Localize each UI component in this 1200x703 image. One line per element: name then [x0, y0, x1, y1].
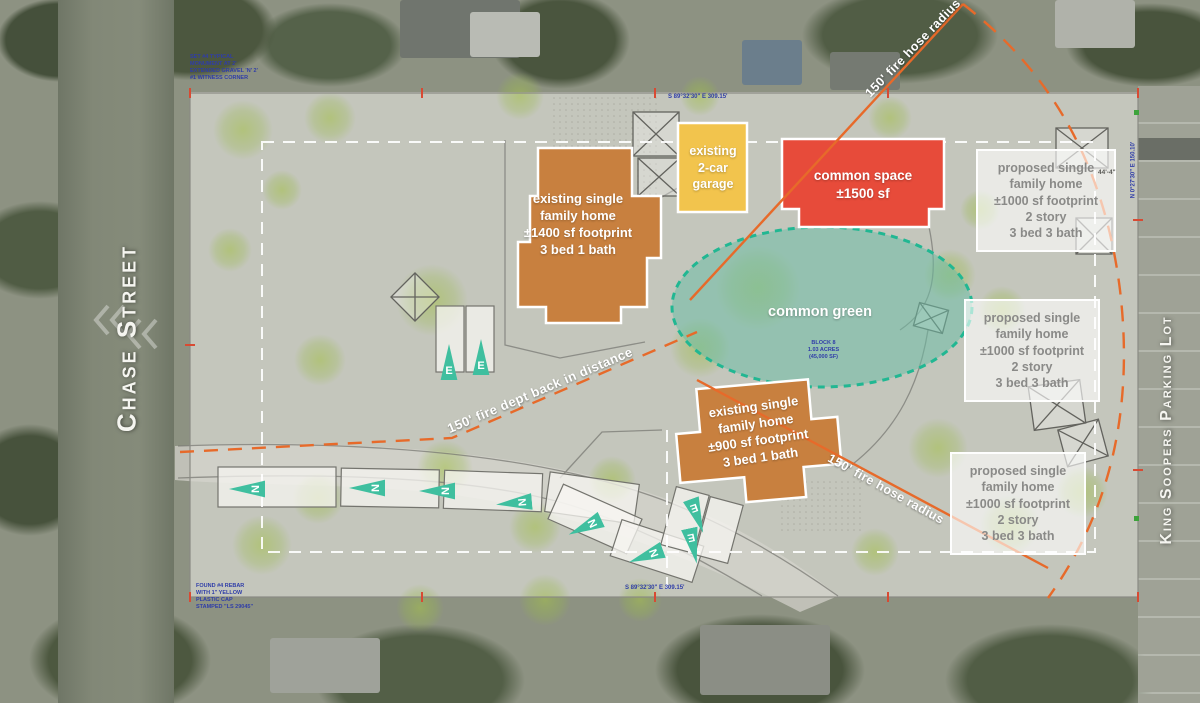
parking-marker-letter: N [518, 497, 533, 506]
tree [396, 584, 444, 632]
tree [519, 574, 571, 626]
parking-marker-letter: E [445, 366, 452, 380]
parking-marker-letter: N [251, 485, 265, 493]
site-plan: existing single family home ±1400 sf foo… [0, 0, 1200, 703]
bottom-boundary-dimension: S 89°32'30" E 309.15' [625, 585, 684, 593]
survey-note-top-left: SET #4 TYPICAL MONUMENT AT 2' EXTENDED G… [190, 54, 258, 82]
tree [294, 334, 346, 386]
tree [304, 92, 356, 144]
existing-home-1-label: existing single family home ±1400 sf foo… [493, 190, 663, 259]
tree [262, 170, 302, 210]
tree [208, 228, 252, 272]
boundary-marker-green [1134, 516, 1139, 521]
proposed-home-1-label: proposed single family home ±1000 sf foo… [976, 149, 1116, 252]
parking-stall [218, 467, 336, 507]
crossed-structure-footprint [633, 112, 679, 156]
common-green-survey-note: BLOCK 8 1.03 ACRES (45,000 SF) [786, 340, 861, 361]
shed-dimension: 44'-4" [1098, 169, 1116, 177]
top-boundary-dimension: S 89°32'30" E 309.15' [668, 94, 727, 102]
parking-marker-letter: E [687, 498, 699, 514]
boundary-marker-green [1134, 110, 1139, 115]
proposed-home-2-label: proposed single family home ±1000 sf foo… [964, 299, 1100, 402]
common-green-label: common green [740, 303, 900, 322]
parking-marker-letter: E [477, 361, 484, 375]
parking-marker-letter: E [686, 528, 696, 543]
king-soopers-parking-lot-label: King Soopers Parking Lot [1158, 315, 1176, 544]
survey-note-bottom-left: FOUND #4 REBAR WITH 1" YELLOW PLASTIC CA… [196, 583, 253, 611]
proposed-home-3-label: proposed single family home ±1000 sf foo… [950, 452, 1086, 555]
chase-street-label: Chase Street [112, 244, 143, 432]
parking-marker-letter: N [441, 487, 455, 495]
right-boundary-dimension: N 0°27'30" E 150.10' [1130, 142, 1138, 198]
tree [868, 96, 912, 140]
garage-label: existing 2-car garage [676, 143, 750, 193]
common-space-label: common space ±1500 sf [788, 167, 938, 203]
parking-marker-letter: N [371, 484, 385, 492]
tree [496, 72, 544, 120]
tree [213, 100, 273, 160]
